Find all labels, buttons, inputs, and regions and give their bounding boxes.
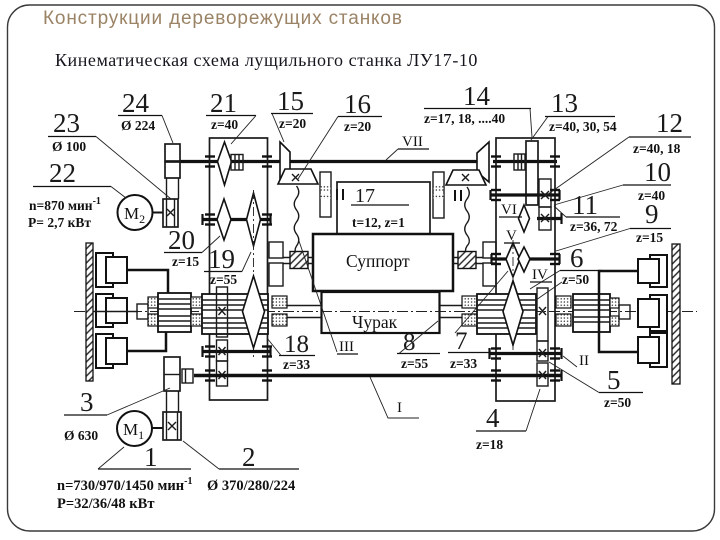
svg-text:8: 8 xyxy=(403,329,416,356)
svg-text:9: 9 xyxy=(645,199,659,229)
svg-text:20: 20 xyxy=(168,225,195,255)
svg-text:t=12, z=1: t=12, z=1 xyxy=(352,215,405,230)
svg-text:z=40: z=40 xyxy=(211,117,238,132)
svg-text:21: 21 xyxy=(210,88,237,118)
svg-text:z=18: z=18 xyxy=(476,437,503,452)
svg-text:z=50: z=50 xyxy=(604,395,631,410)
svg-text:6: 6 xyxy=(570,243,584,273)
svg-text:z=20: z=20 xyxy=(344,119,371,134)
svg-text:n=730/970/1450 мин-1: n=730/970/1450 мин-1 xyxy=(57,476,192,494)
svg-text:Р= 2,7 кВт: Р= 2,7 кВт xyxy=(28,215,91,230)
svg-text:16: 16 xyxy=(344,89,371,119)
svg-text:24: 24 xyxy=(122,88,150,118)
svg-text:Ø 224: Ø 224 xyxy=(121,118,155,133)
svg-text:Р=32/36/48 кВт: Р=32/36/48 кВт xyxy=(57,496,154,512)
svg-text:z=40, 18: z=40, 18 xyxy=(633,141,681,156)
svg-text:19: 19 xyxy=(208,244,235,274)
svg-text:z=55: z=55 xyxy=(401,356,428,371)
svg-text:II: II xyxy=(579,353,589,369)
svg-text:z=40, 30, 54: z=40, 30, 54 xyxy=(549,119,617,134)
svg-text:z=33: z=33 xyxy=(283,357,310,372)
svg-text:z=20: z=20 xyxy=(279,116,306,131)
svg-text:2: 2 xyxy=(242,442,256,472)
svg-text:IV: IV xyxy=(532,267,548,283)
svg-text:z=50: z=50 xyxy=(562,272,589,287)
svg-text:Чурак: Чурак xyxy=(352,312,398,332)
svg-text:5: 5 xyxy=(607,365,621,395)
svg-text:10: 10 xyxy=(644,157,671,187)
svg-text:Ø 100: Ø 100 xyxy=(52,139,86,154)
svg-text:V: V xyxy=(506,228,517,244)
svg-text:z=36, 72: z=36, 72 xyxy=(570,219,618,234)
svg-text:z=15: z=15 xyxy=(172,254,199,269)
svg-text:Суппорт: Суппорт xyxy=(346,251,410,271)
svg-text:n=870 мин-1: n=870 мин-1 xyxy=(29,196,101,213)
svg-text:I: I xyxy=(397,400,402,416)
svg-text:17: 17 xyxy=(355,185,375,207)
svg-text:z=55: z=55 xyxy=(210,272,237,287)
svg-text:13: 13 xyxy=(551,88,578,118)
svg-text:23: 23 xyxy=(53,108,80,138)
svg-text:22: 22 xyxy=(49,158,76,188)
svg-text:3: 3 xyxy=(80,387,94,417)
svg-text:15: 15 xyxy=(277,86,304,116)
svg-text:12: 12 xyxy=(656,108,683,138)
svg-text:11: 11 xyxy=(572,190,598,220)
svg-text:Ø 370/280/224: Ø 370/280/224 xyxy=(207,478,295,494)
svg-text:7: 7 xyxy=(455,328,468,355)
svg-text:z=15: z=15 xyxy=(636,230,663,245)
svg-text:Ø 630: Ø 630 xyxy=(64,428,98,443)
svg-text:III: III xyxy=(339,339,354,355)
svg-text:4: 4 xyxy=(486,403,500,433)
svg-text:z=33: z=33 xyxy=(450,356,477,371)
svg-text:14: 14 xyxy=(463,81,491,111)
svg-text:VI: VI xyxy=(501,202,517,218)
svg-text:z=17, 18, ....40: z=17, 18, ....40 xyxy=(424,111,505,126)
svg-text:18: 18 xyxy=(284,331,309,358)
svg-text:VII: VII xyxy=(402,134,423,150)
svg-text:1: 1 xyxy=(144,442,158,472)
